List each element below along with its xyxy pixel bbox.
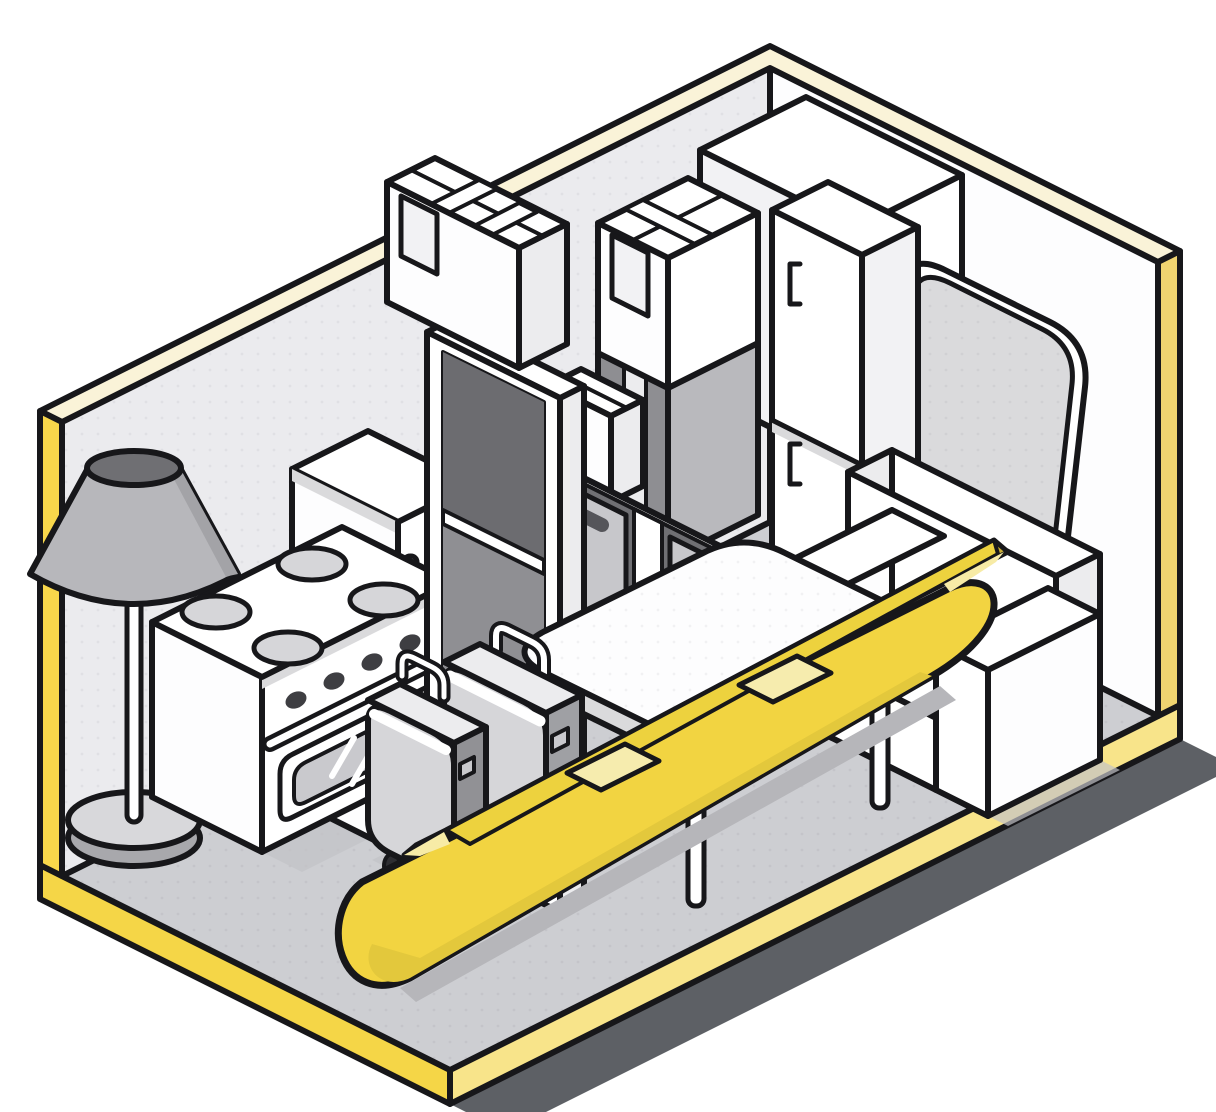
isometric-scene: Isometric self-storage unit illustration	[0, 0, 1216, 1112]
right-wall-outer-edge	[1158, 251, 1180, 716]
left-wall-outer-edge	[40, 411, 62, 876]
sealed-box	[598, 178, 758, 388]
lamp-shade-top	[87, 451, 181, 485]
storage-unit-illustration: Isometric self-storage unit illustration	[0, 0, 1216, 1112]
